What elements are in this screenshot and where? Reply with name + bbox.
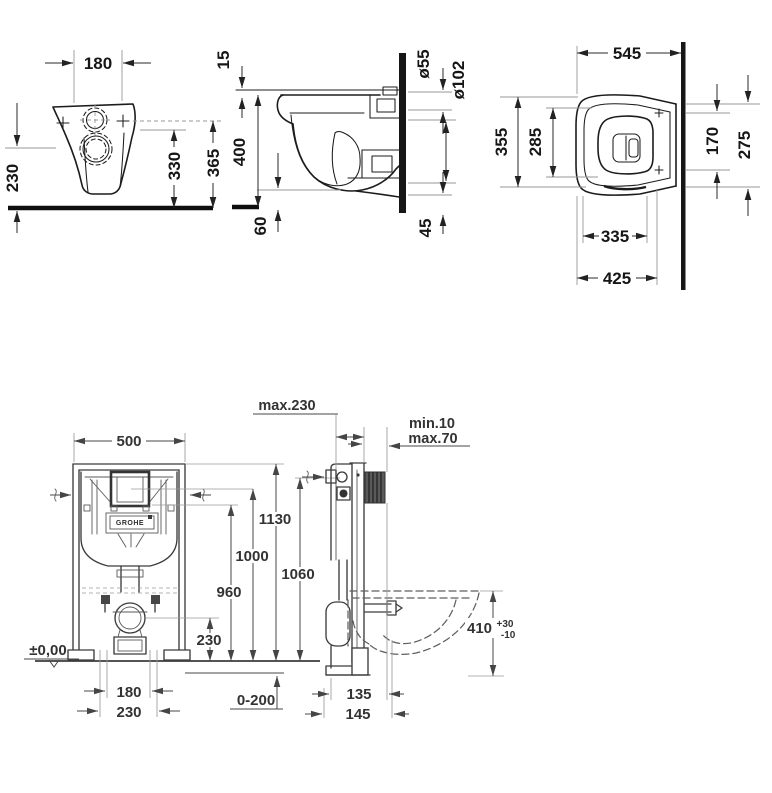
toilet-plan-view: 545 355 285 170 275 335 425	[492, 42, 760, 290]
dim-hole-spacing: 180	[84, 54, 112, 73]
cistern	[81, 472, 177, 592]
dim-rim-offset: 15	[214, 51, 233, 70]
dim-depth-400: 400	[230, 138, 249, 166]
toilet-plan-extension-lines	[500, 46, 760, 285]
wall-plan	[681, 42, 686, 290]
dim-flush-diameter: ø55	[414, 49, 433, 78]
dim-depth-545: 545	[613, 44, 641, 63]
dim-width-355: 355	[492, 128, 511, 156]
dim-frame-width: 500	[116, 433, 141, 450]
dim-330: 330	[165, 152, 184, 180]
dim-outlet-height-230: 230	[196, 632, 221, 649]
frame-side-dimension-lines	[305, 437, 493, 714]
dim-335: 335	[601, 227, 629, 246]
brand-plate-dot	[148, 515, 152, 519]
frame-side-extension-lines	[324, 414, 504, 718]
dim-275: 275	[735, 131, 754, 159]
wall-section	[399, 53, 406, 213]
dim-outlet-diameter: ø102	[449, 61, 468, 100]
dim-410-tol-minus: -10	[501, 630, 516, 641]
dim-bottom-180: 180	[116, 684, 141, 701]
dim-bottom-230: 230	[116, 704, 141, 721]
frame-front-dimension-lines	[74, 414, 338, 711]
toilet-front-view: 180 230 330 365	[3, 50, 223, 233]
dim-1000: 1000	[235, 548, 268, 565]
toilet-side-view: 15 400 60 ø55 ø102 45	[214, 49, 468, 237]
dim-1130: 1130	[259, 511, 292, 528]
dim-floor-range: 0-200	[237, 692, 275, 709]
drain-assembly	[82, 588, 177, 654]
floor-lines	[24, 659, 320, 673]
dim-365: 365	[204, 149, 223, 177]
label-max-70: max.70	[408, 431, 457, 447]
water-supply-symbols	[50, 489, 211, 501]
dim-960: 960	[216, 584, 241, 601]
dim-outlet-height: 230	[3, 164, 22, 192]
dim-410-tol-plus: +30	[496, 619, 513, 630]
toilet-plan-dimension-lines	[518, 53, 748, 278]
dim-145: 145	[345, 706, 370, 723]
frame-front-view: GROHE	[24, 398, 340, 721]
dim-45: 45	[416, 219, 435, 238]
toilet-side-dimension-lines	[242, 66, 446, 234]
label-max-230: max.230	[258, 398, 315, 414]
technical-drawing-canvas: 180 230 330 365	[0, 0, 772, 793]
dim-60: 60	[251, 217, 270, 236]
brand-logo: GROHE	[116, 520, 144, 527]
dim-1060: 1060	[281, 566, 314, 583]
toilet-plan-outline	[576, 42, 686, 290]
technical-drawing-page: 180 230 330 365	[0, 0, 772, 793]
toilet-outline-dashed	[348, 591, 480, 654]
dim-inner-width-285: 285	[526, 128, 545, 156]
toilet-front-extension-lines	[5, 50, 221, 148]
label-min-10: min.10	[409, 416, 455, 432]
frame-structure	[68, 464, 190, 660]
datum-level: ±0,00	[29, 642, 66, 659]
dim-425: 425	[603, 269, 631, 288]
dim-410: 410	[467, 620, 492, 637]
toilet-side-extension-lines	[408, 92, 456, 195]
dim-135: 135	[346, 686, 371, 703]
frame-side-view: min.10 max.70 410 +30 -10 135 145	[302, 414, 518, 723]
dim-170: 170	[703, 127, 722, 155]
wall-covering-section	[365, 472, 385, 503]
